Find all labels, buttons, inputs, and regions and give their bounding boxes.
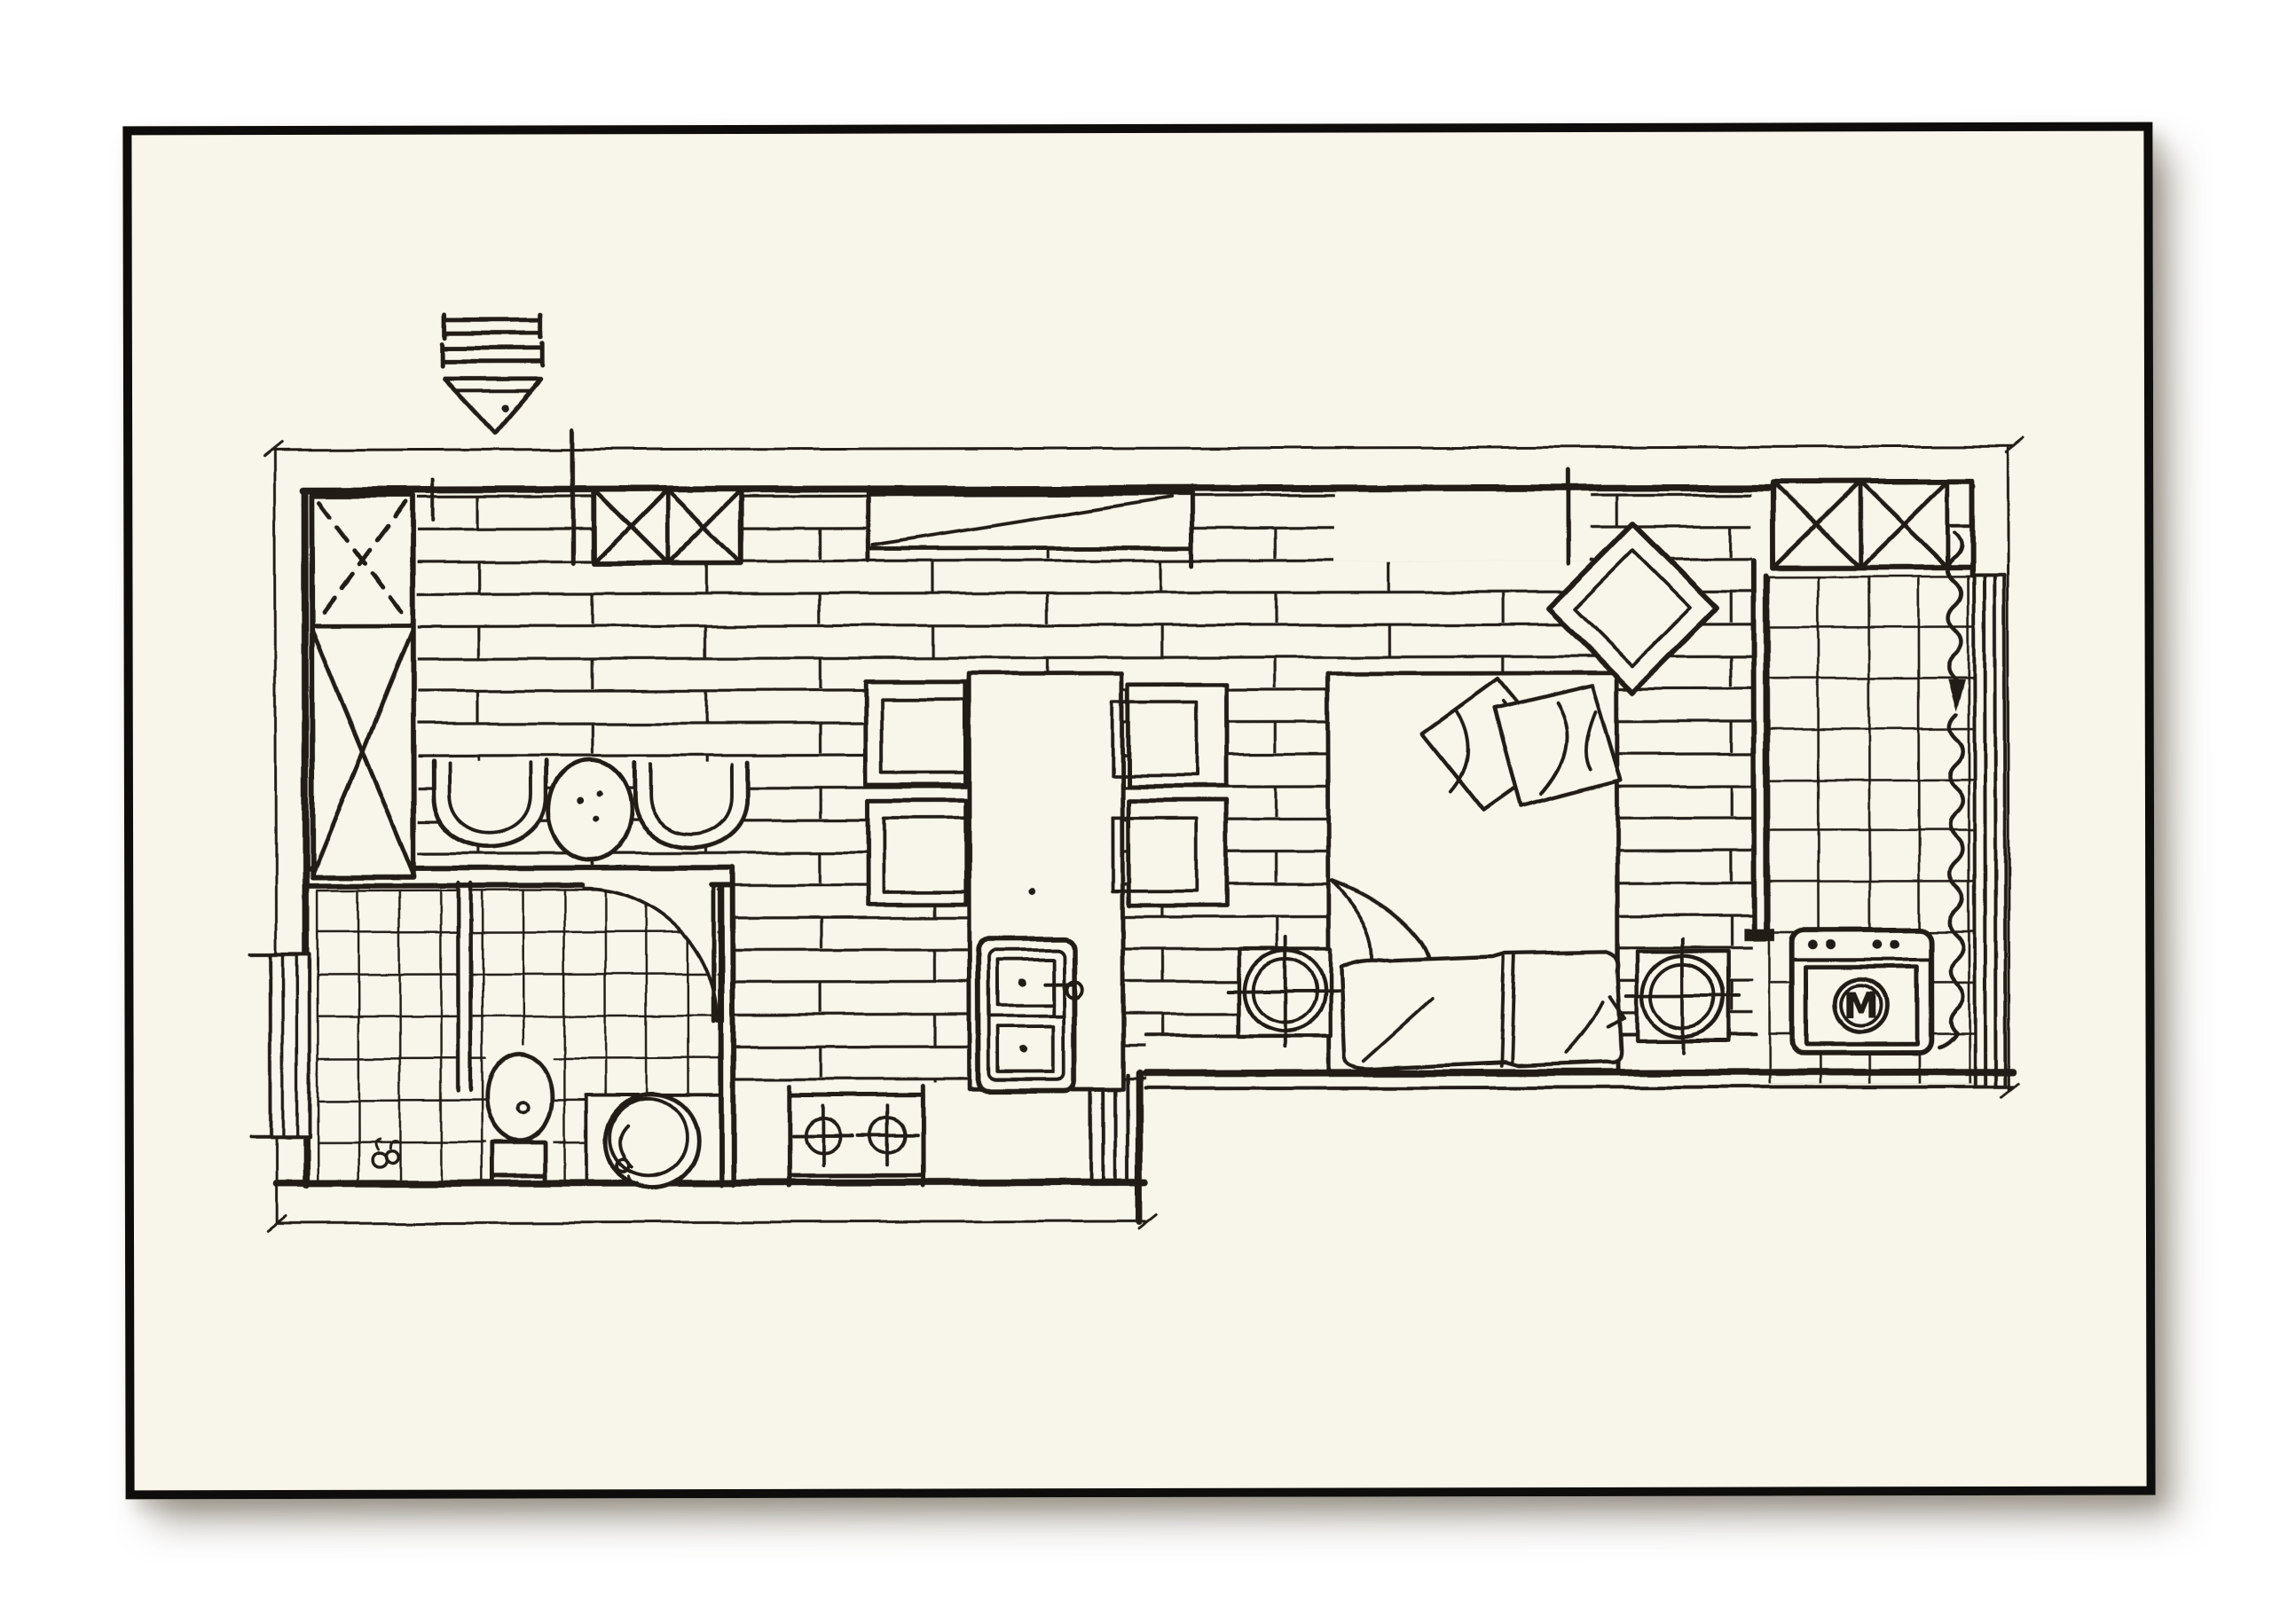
- dining-chair-top-right: [1112, 685, 1227, 787]
- bed: [1328, 673, 1625, 1071]
- kitchen-double-sink: [979, 938, 1083, 1091]
- floor-plan-svg: M: [131, 131, 2146, 1491]
- floor-plan-card: M: [122, 122, 2155, 1500]
- wall-window: [249, 954, 310, 1136]
- washing-machine-label: M: [1844, 985, 1878, 1026]
- entry-arrow: [442, 315, 543, 433]
- washing-machine: M: [1793, 930, 1931, 1053]
- dining-chair-bottom-right: [1112, 800, 1227, 906]
- wardrobe-x-box: [311, 495, 413, 877]
- lounge-chair-left: [433, 761, 546, 846]
- toilet-bowl: [487, 1054, 552, 1142]
- dining-chair-bottom-left: [868, 801, 968, 905]
- double-x-closet: [594, 490, 741, 563]
- nightstand-lamp-right: [1626, 940, 1739, 1053]
- kitchen-door-tracks: [1090, 1075, 1128, 1183]
- toilet: [487, 1054, 552, 1182]
- sliding-window-tracks: [1974, 575, 2006, 1084]
- headboard-shelf: [1334, 493, 1590, 562]
- round-side-table: [549, 760, 632, 860]
- lounge-chair-right: [634, 763, 748, 848]
- two-burner-stove: [790, 1086, 923, 1186]
- dining-chair-top-left: [866, 681, 966, 785]
- nightstand-lamp-left: [1229, 937, 1341, 1047]
- duvet: [1340, 952, 1624, 1069]
- top-right-x-closet: [1773, 482, 1972, 568]
- photo-background: M: [0, 0, 2280, 1624]
